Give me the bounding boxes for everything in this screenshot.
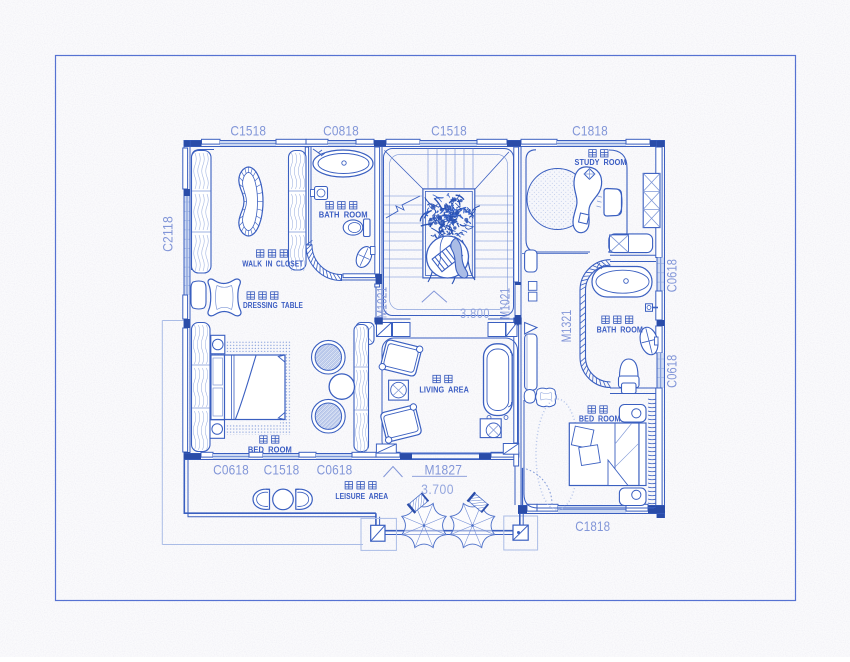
svg-text:STUDY ROOM: STUDY ROOM: [575, 157, 627, 167]
svg-text:BATH ROOM: BATH ROOM: [597, 325, 643, 335]
svg-text:C1518: C1518: [264, 462, 300, 478]
svg-text:C1818: C1818: [572, 123, 608, 139]
svg-text:M1021: M1021: [497, 288, 513, 320]
svg-text:BED ROOM: BED ROOM: [579, 414, 621, 424]
svg-text:C1518: C1518: [431, 123, 467, 139]
svg-text:C0618: C0618: [213, 462, 249, 478]
svg-text:BED ROOM: BED ROOM: [248, 444, 292, 454]
svg-text:C0618: C0618: [317, 462, 353, 478]
svg-text:M1321: M1321: [558, 310, 574, 343]
svg-text:C1518: C1518: [230, 123, 266, 139]
svg-text:LEISURE AREA: LEISURE AREA: [335, 491, 388, 501]
svg-text:M1827: M1827: [425, 462, 463, 478]
svg-text:3.700: 3.700: [421, 481, 454, 497]
svg-text:WALK IN CLOSET: WALK IN CLOSET: [242, 259, 303, 269]
svg-text:LIVING AREA: LIVING AREA: [419, 384, 469, 394]
svg-text:3.800: 3.800: [460, 305, 490, 321]
svg-text:C0818: C0818: [323, 123, 359, 139]
svg-text:C0618: C0618: [663, 355, 679, 388]
svg-text:DRESSING TABLE: DRESSING TABLE: [243, 300, 303, 310]
svg-text:C1818: C1818: [575, 518, 610, 534]
svg-text:BATH ROOM: BATH ROOM: [319, 210, 368, 220]
svg-text:C2118: C2118: [160, 216, 176, 252]
svg-text:C0618: C0618: [663, 259, 679, 292]
svg-text:M1021: M1021: [374, 287, 390, 319]
